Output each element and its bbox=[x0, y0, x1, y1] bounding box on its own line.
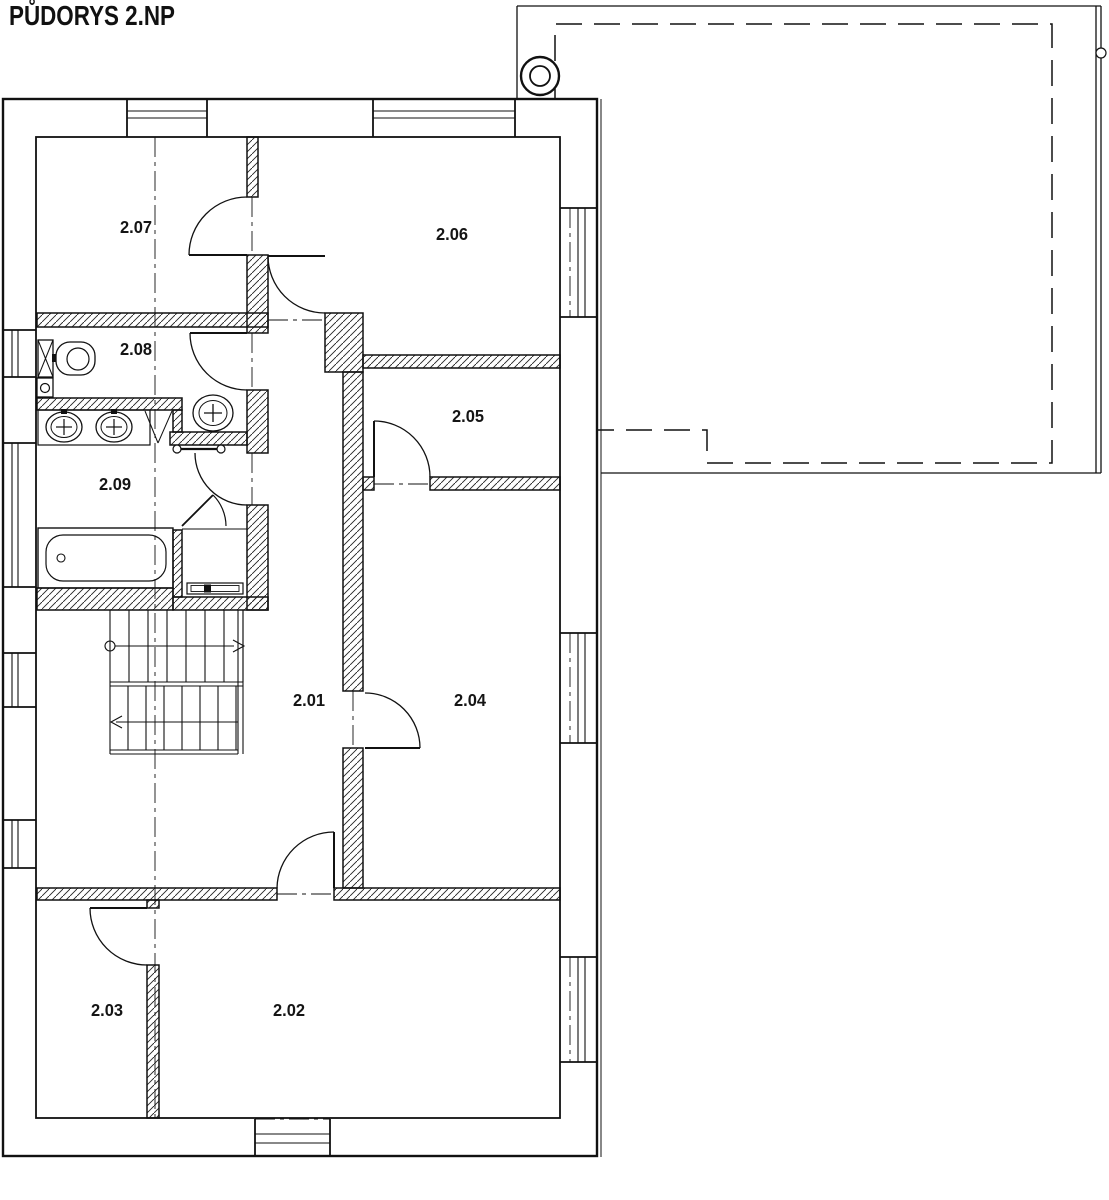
room-label-2-02: 2.02 bbox=[273, 1000, 305, 1020]
toilet bbox=[193, 395, 233, 431]
room-label-2-08: 2.08 bbox=[120, 339, 152, 359]
room-label-2-06: 2.06 bbox=[436, 224, 468, 244]
terrace-roof-outline bbox=[517, 6, 1106, 473]
roof-edge-dashed bbox=[555, 24, 1052, 463]
chimney-icon bbox=[521, 57, 559, 95]
room-label-2-04: 2.04 bbox=[454, 690, 486, 710]
room-label-2-07: 2.07 bbox=[120, 217, 152, 237]
room-label-2-09: 2.09 bbox=[99, 474, 131, 494]
room-label-2-03: 2.03 bbox=[91, 1000, 123, 1020]
floor-plan-page: PŮDORYS 2.NP bbox=[0, 0, 1109, 1200]
gutter-drain-icon bbox=[1096, 48, 1106, 58]
exterior-walls bbox=[3, 99, 601, 1157]
floor-plan-canvas: 2.01 2.02 2.03 2.04 2.05 2.06 2.07 2.08 … bbox=[0, 0, 1109, 1200]
room-label-2-01: 2.01 bbox=[293, 690, 325, 710]
room-label-2-05: 2.05 bbox=[452, 406, 484, 426]
